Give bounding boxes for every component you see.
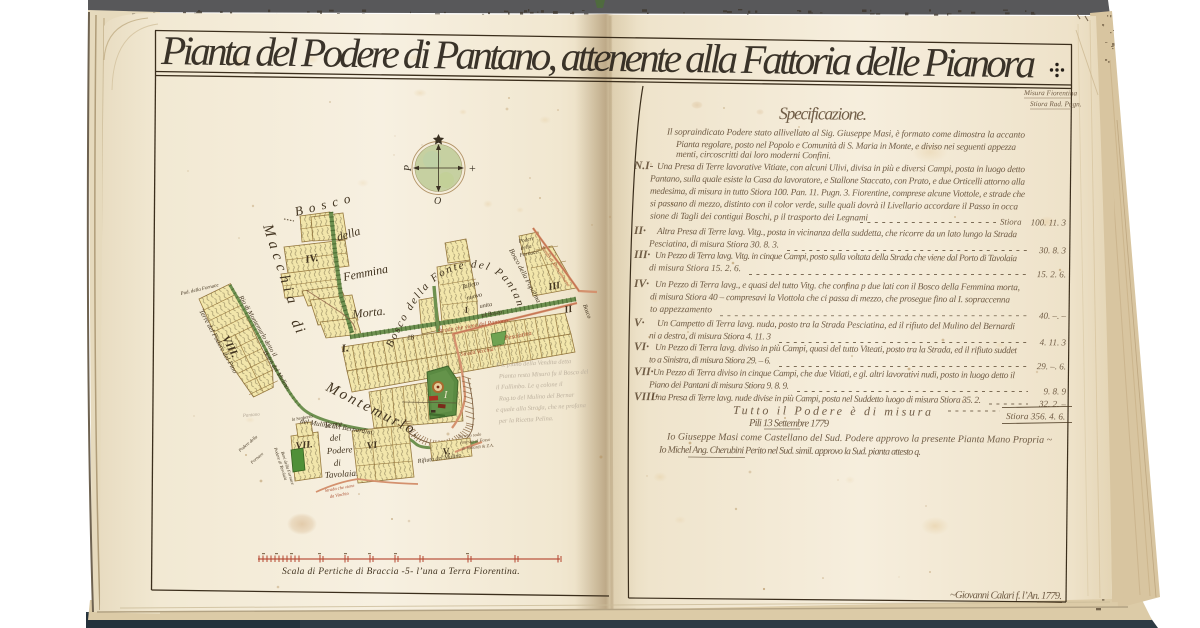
svg-text:O: O (434, 196, 441, 207)
svg-text:menti, circoscritti dai loro m: menti, circoscritti dai loro moderni Con… (676, 149, 831, 161)
svg-text:V·: V· (634, 317, 645, 329)
svg-text:IV.: IV. (303, 252, 319, 266)
svg-text:Tutto il Podere è di misura: Tutto il Podere è di misura (733, 403, 931, 419)
svg-text:to a Sinistra, di misura Stior: to a Sinistra, di misura Stiora 29. – 6. (649, 355, 771, 366)
svg-text:Misura Fiorentina: Misura Fiorentina (1023, 89, 1078, 97)
svg-text:Scala di Pertiche di Braccia -: Scala di Pertiche di Braccia -5- l’una a… (282, 567, 520, 577)
svg-text:VII.: VII. (295, 439, 313, 452)
svg-text:del: del (329, 432, 341, 443)
svg-text:P: P (403, 165, 414, 172)
svg-text:15. 2. 6.: 15. 2. 6. (1037, 269, 1066, 279)
svg-text:+: + (469, 161, 476, 175)
svg-text:I: I (443, 390, 448, 401)
svg-text:IV·: IV· (633, 278, 649, 290)
svg-text:Stiora 356. 4. 6.: Stiora 356. 4. 6. (1006, 411, 1065, 422)
svg-text:30. 8. 3: 30. 8. 3 (1038, 245, 1067, 255)
svg-text:Stiora: Stiora (1000, 217, 1022, 227)
svg-text:VII·: VII· (634, 366, 654, 378)
svg-text:di misura Stiora 15. 2. 6.: di misura Stiora 15. 2. 6. (649, 263, 741, 274)
svg-text:sione di Tagli dei contigui Bo: sione di Tagli dei contigui Boschi, p il… (650, 212, 868, 224)
svg-text:Stiora Rad. Pugn.: Stiora Rad. Pugn. (1030, 100, 1082, 108)
svg-text:Terre: Terre (323, 419, 342, 430)
svg-text:Podere: Podere (325, 444, 352, 456)
svg-text:~Giovanni Calari f. l’An. 1779: ~Giovanni Calari f. l’An. 1779. (950, 590, 1062, 602)
svg-text:4. 11. 3: 4. 11. 3 (1040, 337, 1067, 347)
svg-text:29. –. 6.: 29. –. 6. (1037, 361, 1066, 371)
svg-text:VI·: VI· (634, 341, 649, 353)
svg-text:N.I-: N.I- (633, 160, 654, 172)
svg-text:Pesciatina, di misura Stiora 3: Pesciatina, di misura Stiora 30. 8. 3. (648, 239, 779, 250)
svg-text:40. –. –: 40. –. – (1039, 311, 1067, 321)
svg-text:I.: I. (340, 342, 349, 355)
svg-text:100. 11. 3: 100. 11. 3 (1031, 217, 1067, 227)
svg-text:ni a destra, di misura Stiora: ni a destra, di misura Stiora 4. 11. 3 (649, 331, 771, 342)
svg-text:to appezzamento: to appezzamento (650, 305, 712, 316)
svg-text:Io Michel Ang. Cherubini Perit: Io Michel Ang. Cherubini Perito nel Sud.… (658, 444, 921, 457)
svg-text:Specificazione.: Specificazione. (779, 103, 867, 124)
svg-text:II·: II· (633, 225, 646, 237)
svg-text:III·: III· (633, 249, 651, 261)
svg-text:Piano dei Pantani di misura St: Piano dei Pantani di misura Stiora 9. 8.… (648, 380, 789, 391)
svg-text:32. 2. –: 32. 2. – (1038, 399, 1067, 409)
svg-text:9. 8. 9: 9. 8. 9 (1043, 386, 1066, 396)
svg-text:di: di (333, 457, 341, 467)
svg-text:Pili 13 Settembre 1779: Pili 13 Settembre 1779 (748, 418, 830, 430)
